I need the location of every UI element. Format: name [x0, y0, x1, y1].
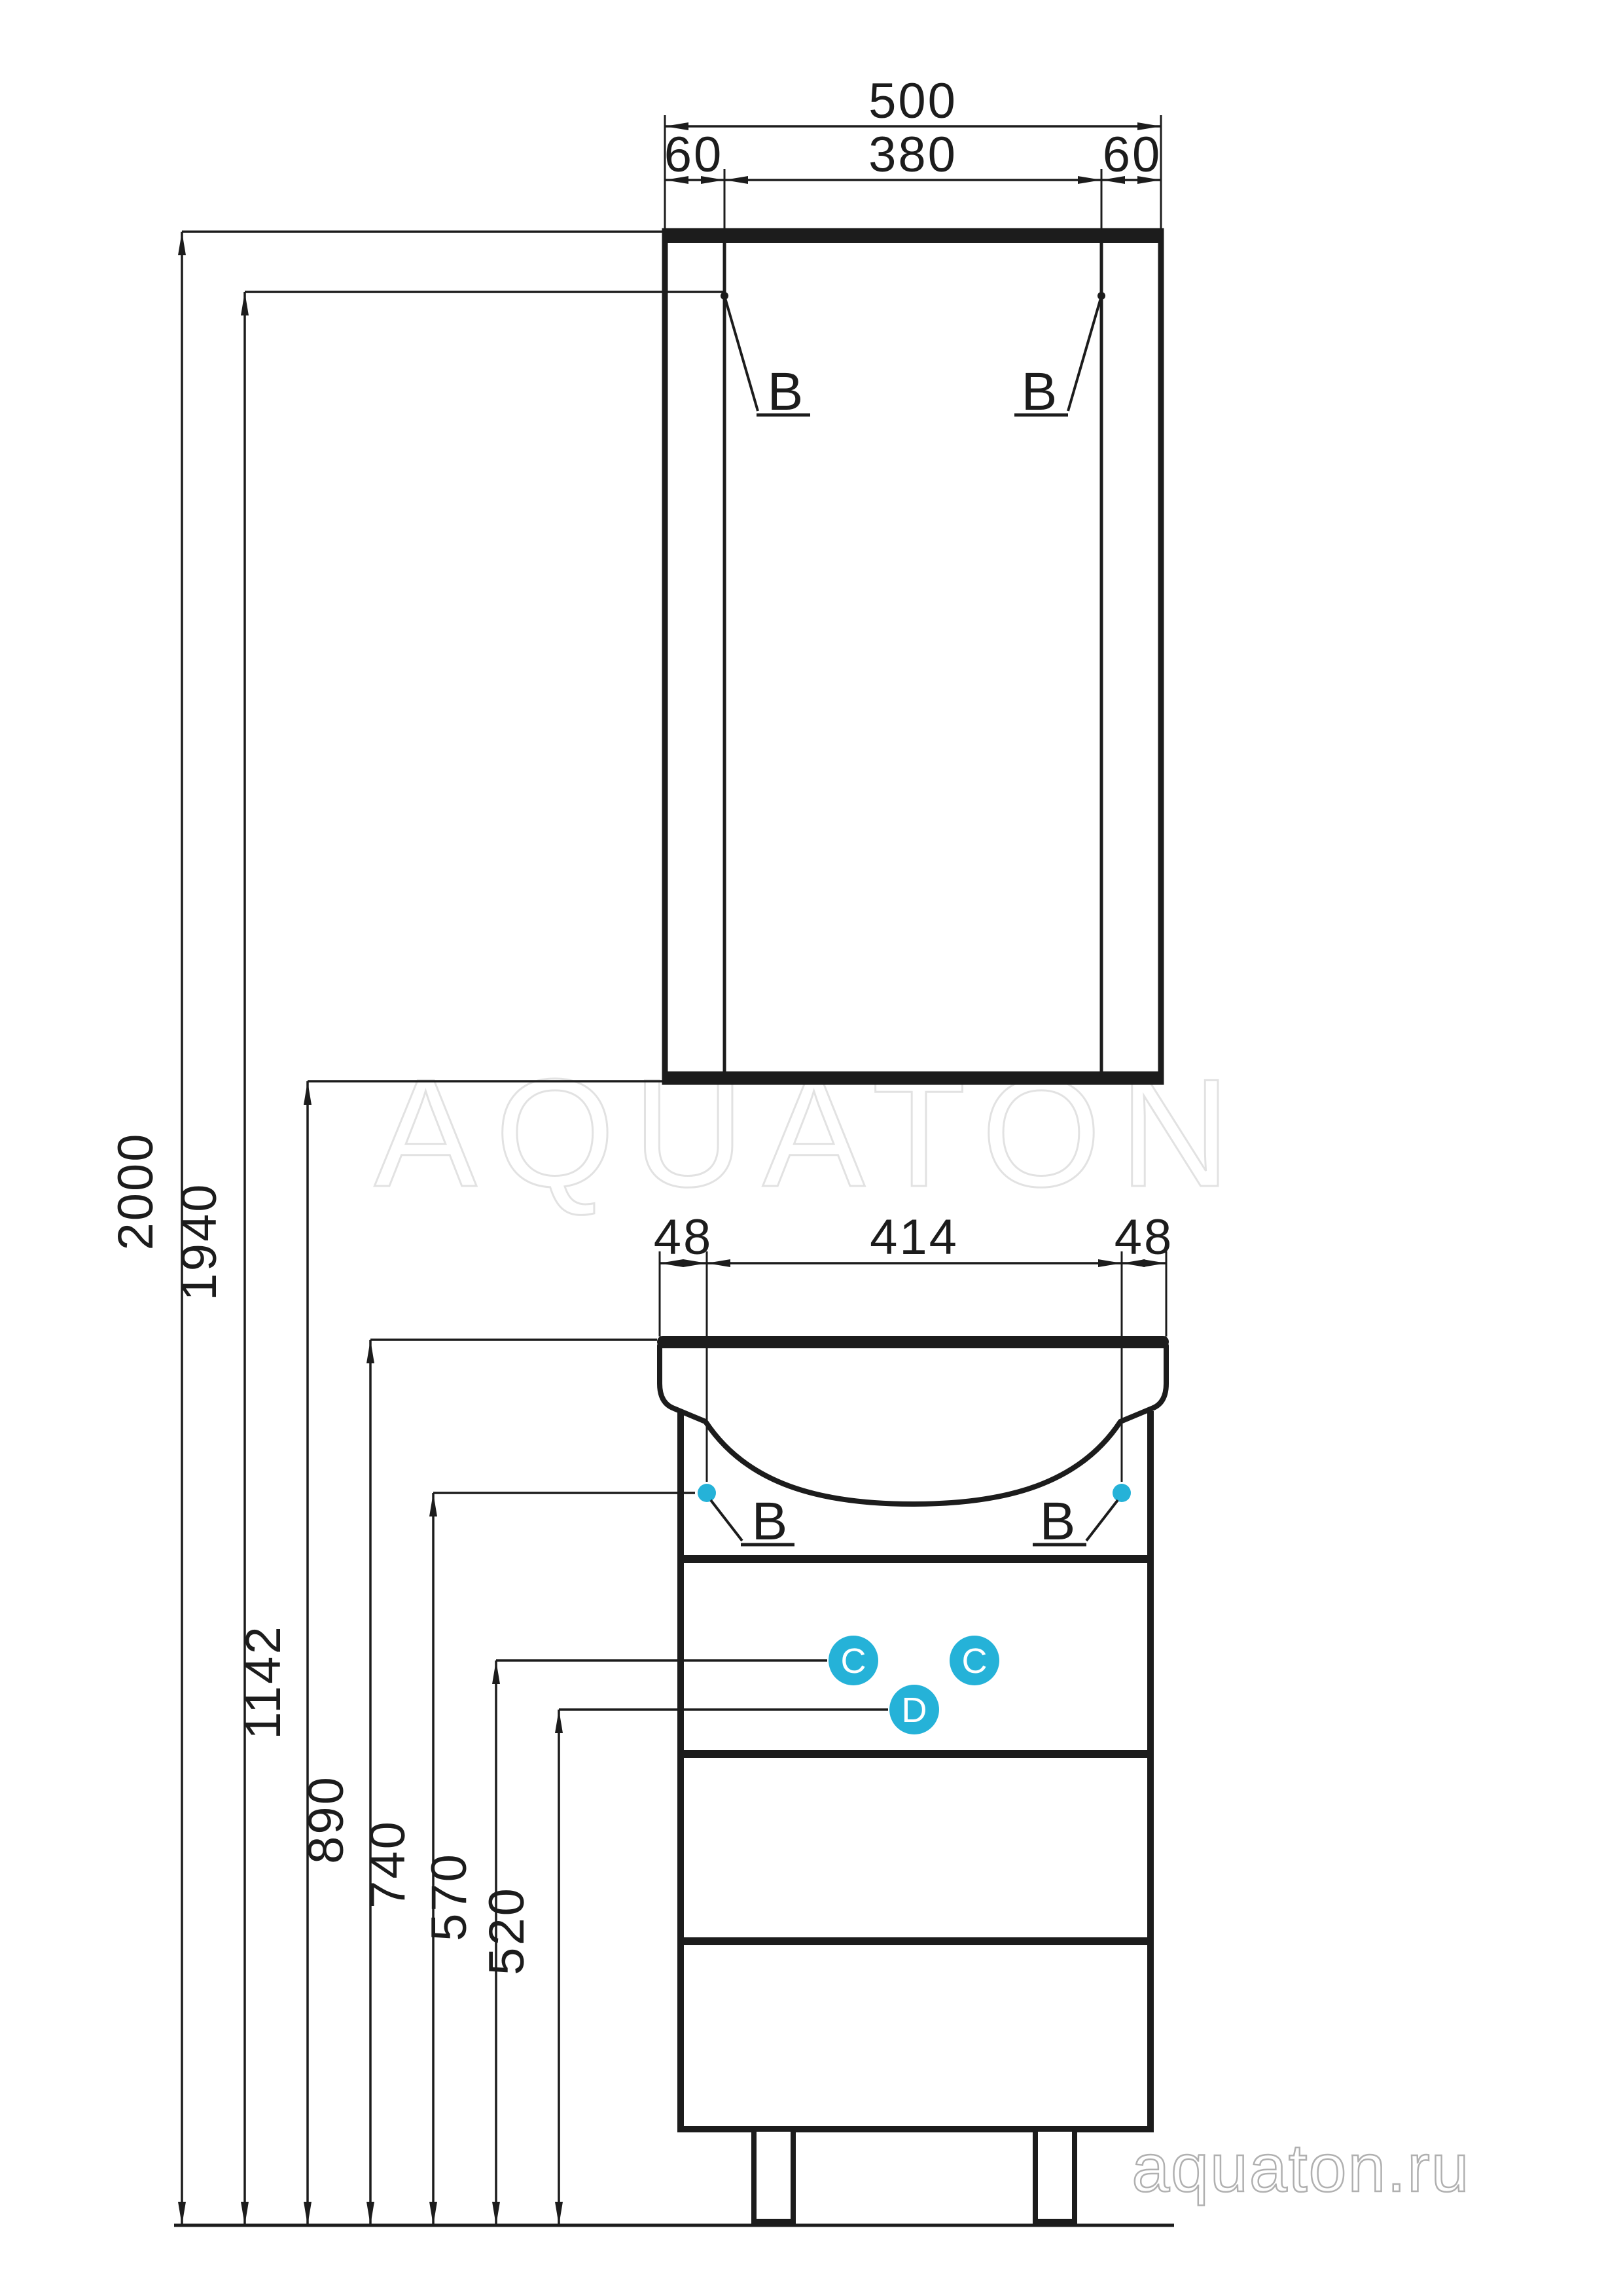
dim-label-500: 500 — [868, 73, 957, 129]
mount-point-left — [698, 1484, 716, 1502]
dim-label: 890 — [298, 1775, 354, 1864]
vanity-leg-left — [754, 2129, 793, 2221]
mount-point-right — [1113, 1484, 1131, 1502]
vanity-leg-right — [1035, 2129, 1075, 2221]
dim-label: 570 — [421, 1852, 477, 1941]
dim-label: 1940 — [171, 1182, 227, 1300]
handle-badge-center-label: D — [902, 1691, 927, 1730]
site-watermark: aquaton.ru — [1132, 2130, 1470, 2206]
dim-label: 1142 — [236, 1624, 291, 1739]
mirror-cabinet-outline — [665, 231, 1161, 1082]
mirror-width-dimensions: 500 60 380 60 — [664, 73, 1162, 229]
dim-label-48-left: 48 — [654, 1210, 713, 1265]
height-dim-740: 740 — [360, 1493, 695, 2225]
technical-drawing: AQUATON aquaton.ru B B 500 60 380 60 — [0, 0, 1623, 2296]
handle-badge-left-label: C — [841, 1641, 866, 1681]
drawing-page: AQUATON aquaton.ru B B 500 60 380 60 — [0, 0, 1623, 2296]
dim-label-414: 414 — [870, 1210, 959, 1265]
height-dim-1142: 1142 — [236, 1081, 665, 2225]
dim-label-48-right: 48 — [1115, 1210, 1174, 1265]
mount-callout-right-label: B — [1040, 1492, 1076, 1551]
dim-label: 2000 — [108, 1132, 164, 1250]
dim-label-60-right: 60 — [1103, 127, 1162, 183]
mirror-cabinet: B B — [665, 231, 1161, 1082]
hinge-callout-right-label: B — [1022, 362, 1058, 422]
handle-badge-right-label: C — [962, 1641, 988, 1681]
dim-label-60-left: 60 — [664, 127, 724, 183]
mount-callout-left-label: B — [752, 1492, 788, 1551]
hinge-callout-left-label: B — [768, 362, 804, 422]
dim-label-380: 380 — [868, 127, 957, 183]
height-dim-890: 890 — [298, 1340, 657, 2225]
dim-label: 740 — [360, 1820, 416, 1909]
dim-label: 520 — [479, 1886, 535, 1975]
